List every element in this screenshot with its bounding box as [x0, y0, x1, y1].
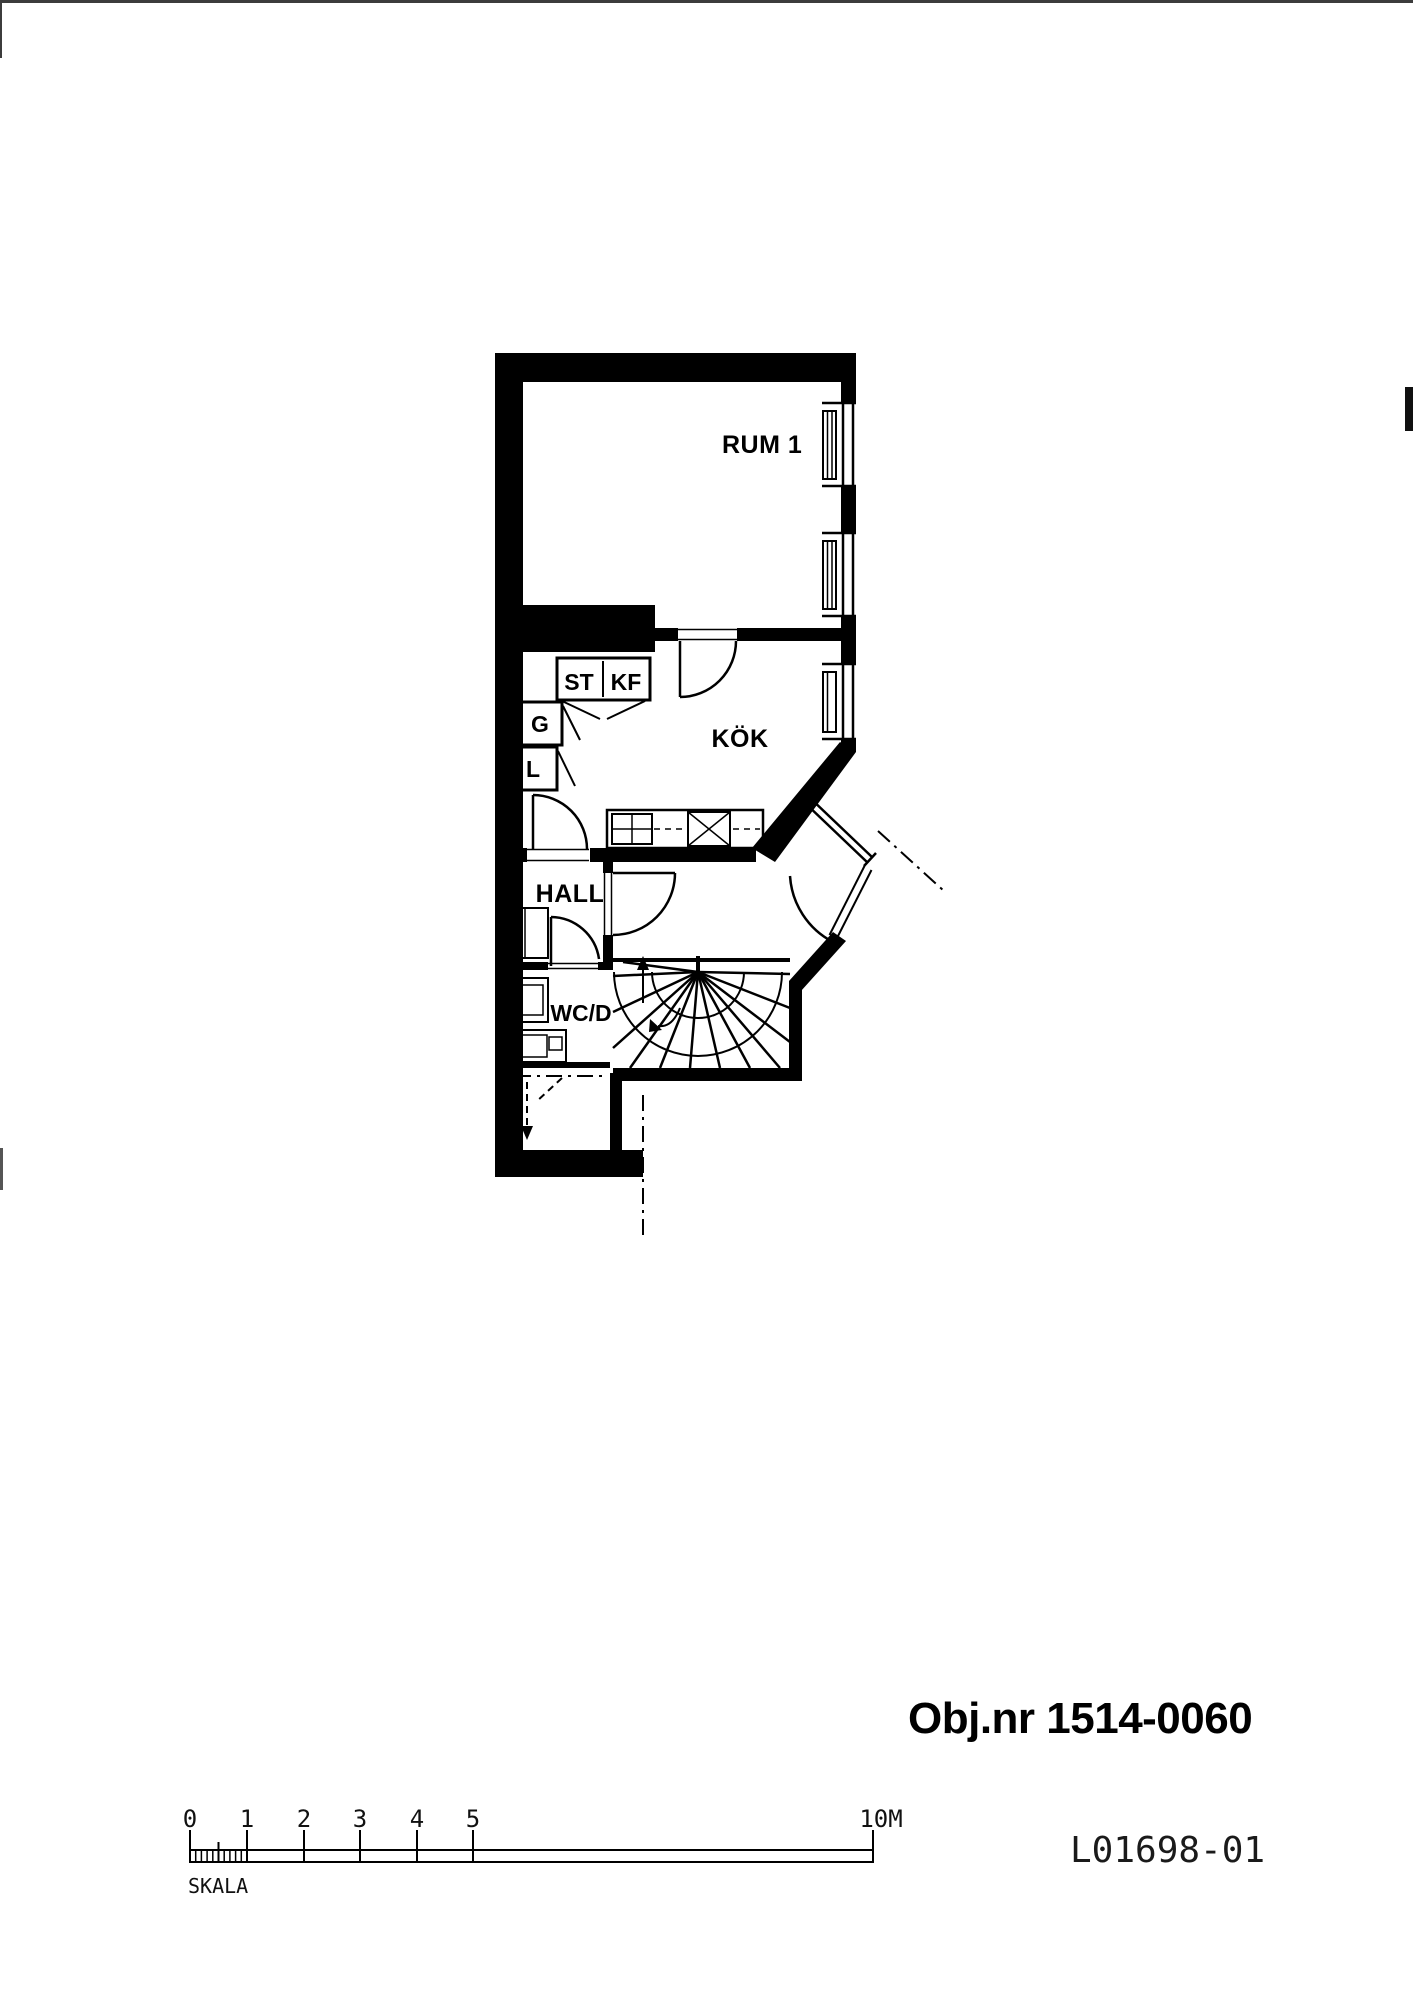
scale-bar-body: [190, 1850, 873, 1862]
scale-bar-ticks: [190, 1830, 873, 1862]
scale-tick-label-3: 3: [353, 1805, 367, 1833]
window-icon: [822, 402, 856, 487]
sink-icon: [612, 814, 652, 844]
window-icon: [822, 663, 856, 740]
entry-arrow: [521, 1078, 562, 1140]
closets: [517, 658, 650, 958]
room-label-kok: KÖK: [711, 724, 768, 753]
closet-label-kf: KF: [611, 669, 642, 695]
washbasin-icon: [516, 978, 548, 1022]
scale-tick-label-4: 4: [410, 1805, 424, 1833]
entrance-door-icon: [790, 866, 872, 942]
floor-plan: RUM 1 ST KF G L KÖK HALL WC/D: [495, 353, 944, 1235]
corridor-door-icon: [527, 795, 589, 861]
stove-icon: [688, 812, 730, 846]
object-number: Obj.nr 1514-0060: [908, 1694, 1252, 1743]
kitchen-door-icon: [678, 630, 737, 698]
scale-tick-label-0: 0: [183, 1805, 197, 1833]
scale-tick-label-1: 1: [240, 1805, 254, 1833]
closet-label-l: L: [526, 756, 540, 782]
kitchen-fixtures: [607, 810, 763, 848]
plan-labels: RUM 1 ST KF G L KÖK HALL WC/D: [526, 431, 802, 1026]
window-icon: [822, 532, 856, 617]
closet-label-st: ST: [564, 669, 593, 695]
room-label-wcd: WC/D: [550, 1000, 611, 1026]
page-left-corner-mark: [0, 0, 2, 58]
drawing-number: L01698-01: [1070, 1830, 1265, 1871]
scale-tick-label-5: 5: [466, 1805, 480, 1833]
page-left-edge-mark: [0, 1148, 3, 1190]
page-right-edge-mark: [1405, 387, 1413, 431]
section-line-diagonal: [878, 831, 944, 891]
title-block: Obj.nr 1514-0060 L01698-01: [908, 1694, 1265, 1871]
toilet-icon: [516, 1030, 566, 1062]
scale-end-label: 10M: [859, 1805, 902, 1833]
skala-label: SKALA: [188, 1874, 248, 1898]
spiral-staircase: [613, 956, 790, 1068]
closet-label-g: G: [531, 711, 549, 737]
room-label-rum1: RUM 1: [722, 431, 802, 459]
room-label-hall: HALL: [536, 880, 605, 908]
scale-tick-label-2: 2: [297, 1805, 311, 1833]
wc-door-icon: [548, 917, 599, 969]
page-top-border: [0, 0, 1413, 3]
scanned-drawing-page: RUM 1 ST KF G L KÖK HALL WC/D Obj.nr 151…: [0, 0, 1413, 2000]
scale-bar-labels: 0 1 2 3 4 5 10M SKALA: [183, 1805, 903, 1898]
scale-bar: 0 1 2 3 4 5 10M SKALA: [183, 1805, 903, 1898]
hall-door-icon: [605, 873, 676, 935]
